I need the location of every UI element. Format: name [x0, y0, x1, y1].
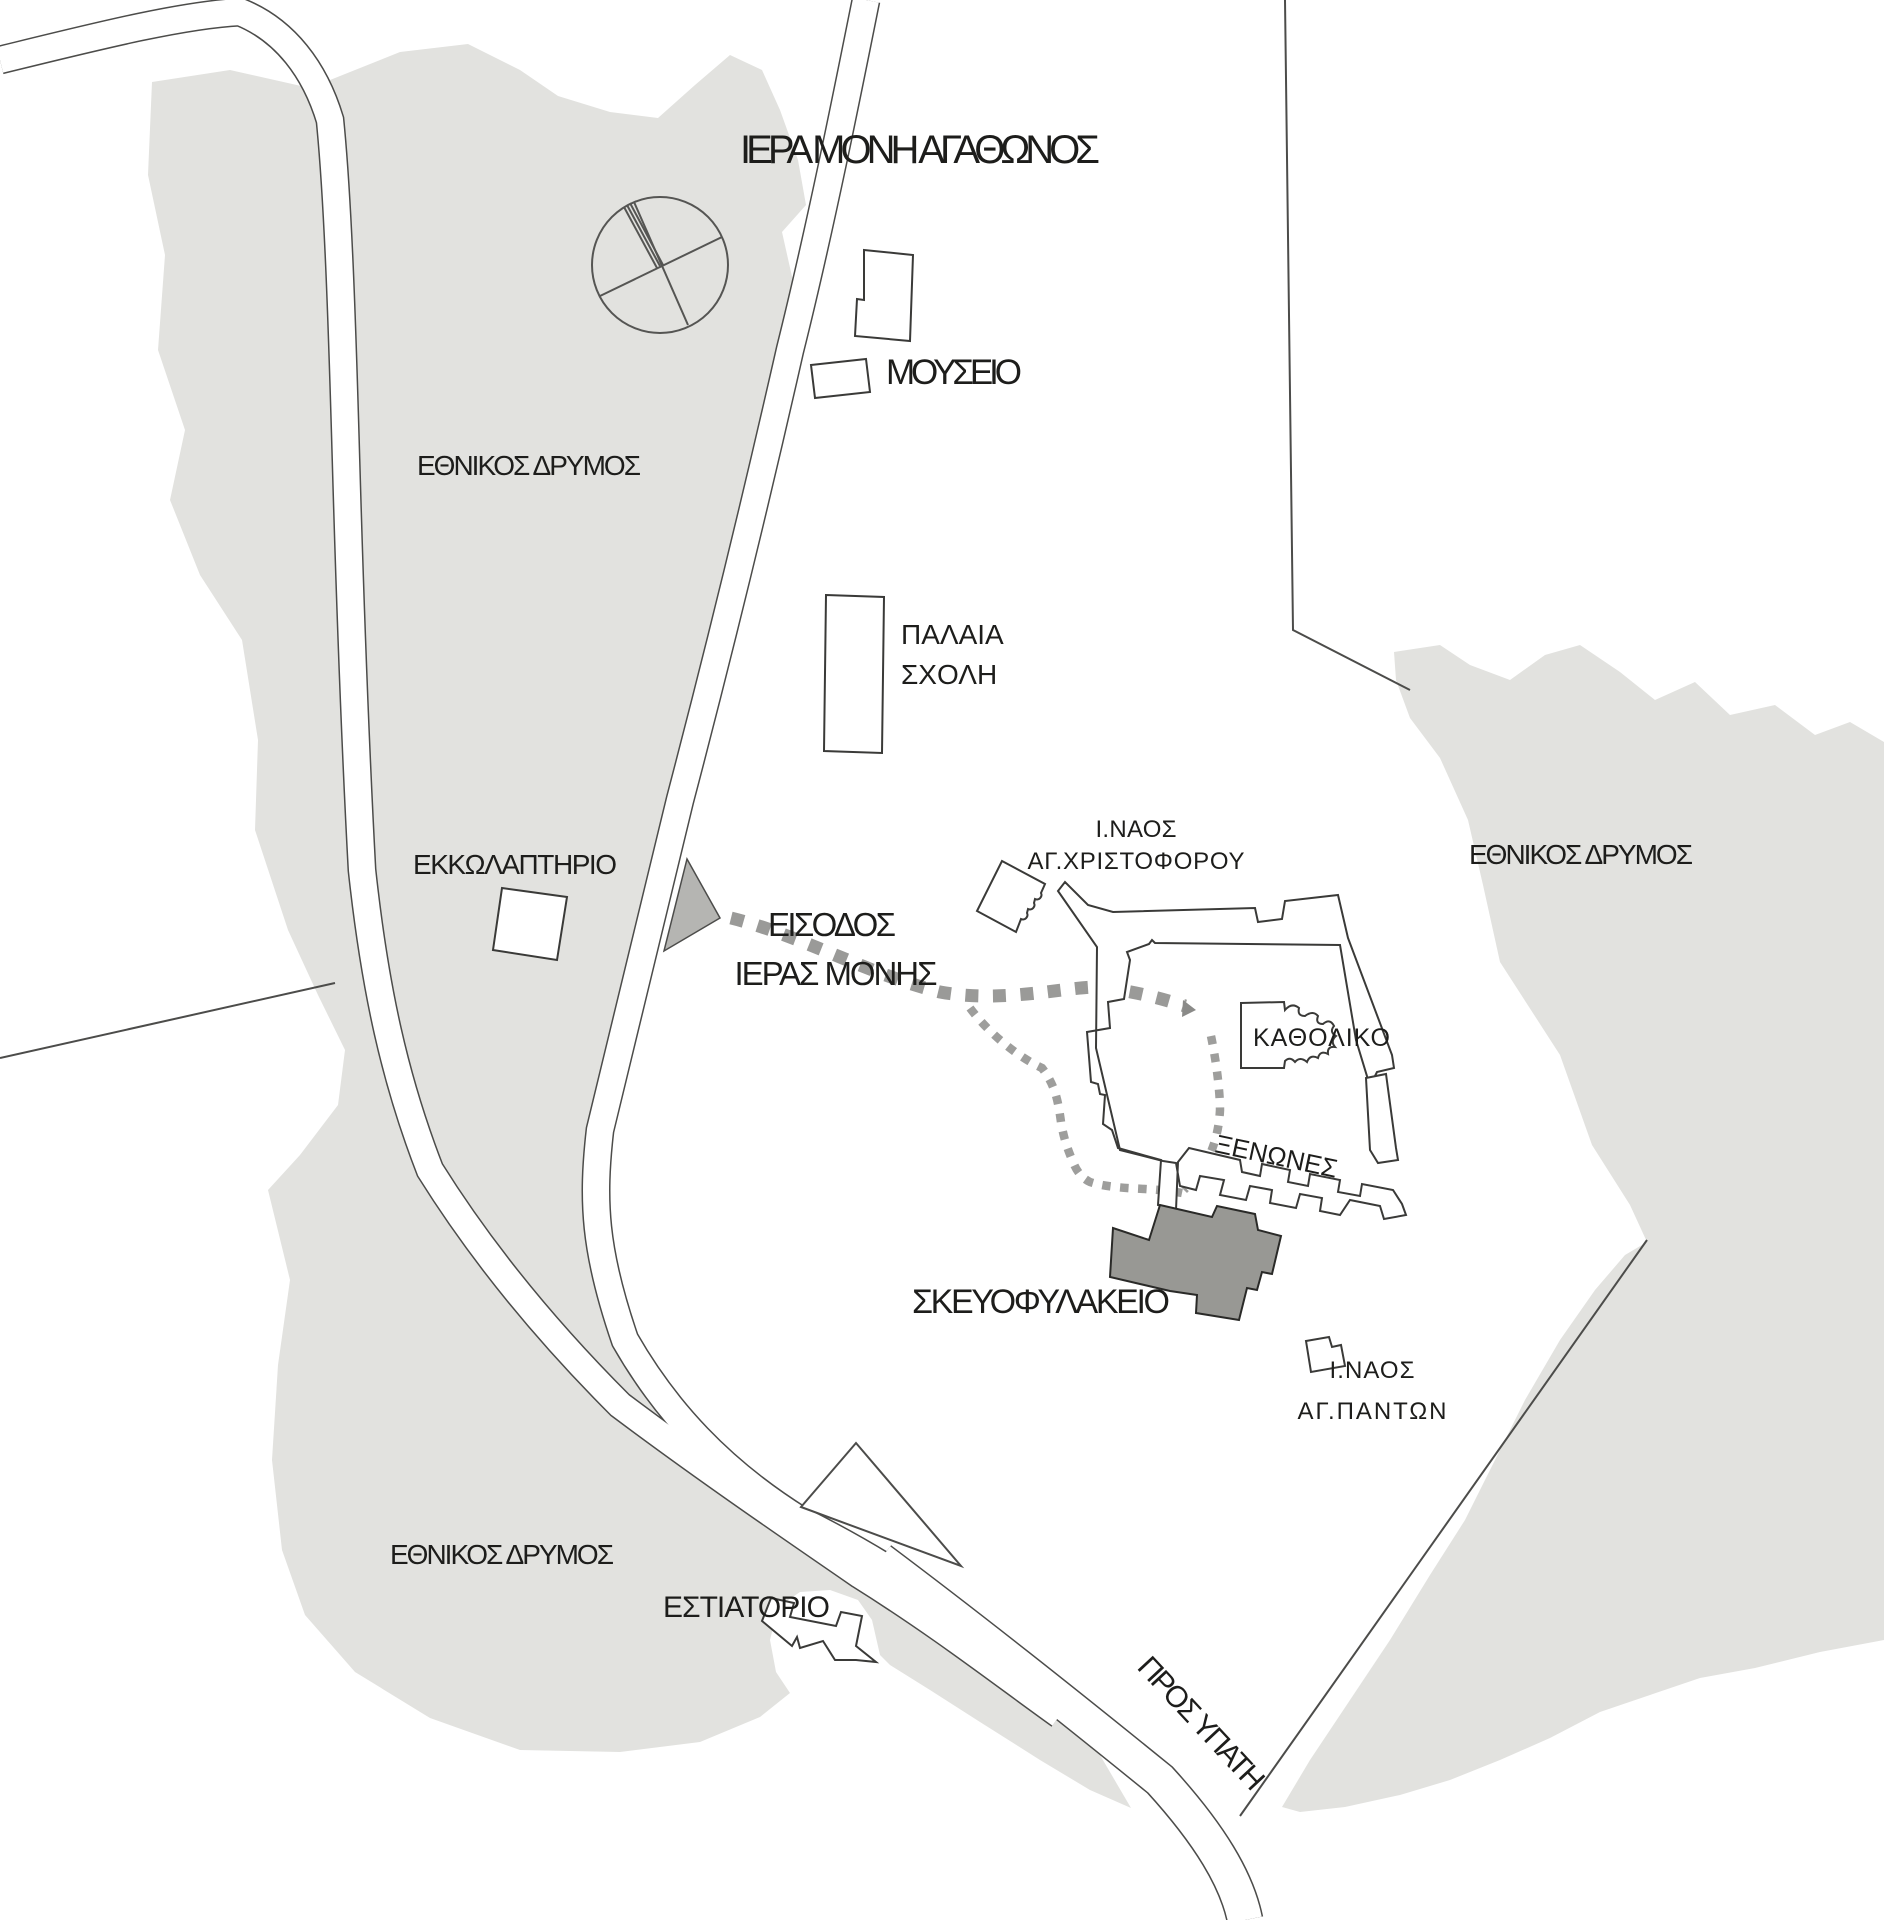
svg-text:ΕΘΝΙΚΟΣ ΔΡΥΜΟΣ: ΕΘΝΙΚΟΣ ΔΡΥΜΟΣ: [417, 450, 641, 481]
svg-text:ΕΙΣΟΔΟΣ: ΕΙΣΟΔΟΣ: [768, 906, 896, 943]
svg-text:ΠΑΛΑΙΑ: ΠΑΛΑΙΑ: [901, 619, 1004, 650]
svg-text:ΙΕΡΑΣ ΜΟΝΗΣ: ΙΕΡΑΣ ΜΟΝΗΣ: [735, 955, 938, 992]
svg-text:ΜΟΥΣΕΙΟ: ΜΟΥΣΕΙΟ: [886, 353, 1022, 392]
svg-text:ΕΚΚΩΛΑΠΤΗΡΙΟ: ΕΚΚΩΛΑΠΤΗΡΙΟ: [413, 849, 617, 880]
svg-text:ΕΘΝΙΚΟΣ ΔΡΥΜΟΣ: ΕΘΝΙΚΟΣ ΔΡΥΜΟΣ: [1469, 839, 1693, 870]
svg-text:ΕΘΝΙΚΟΣ ΔΡΥΜΟΣ: ΕΘΝΙΚΟΣ ΔΡΥΜΟΣ: [390, 1539, 614, 1570]
svg-text:ΕΣΤΙΑΤΟΡΙΟ: ΕΣΤΙΑΤΟΡΙΟ: [663, 1591, 830, 1624]
svg-text:ΑΓ.ΧΡΙΣΤΟΦΟΡΟΥ: ΑΓ.ΧΡΙΣΤΟΦΟΡΟΥ: [1028, 848, 1245, 875]
svg-text:Ι.ΝΑΟΣ: Ι.ΝΑΟΣ: [1330, 1357, 1415, 1384]
svg-text:ΣΧΟΛΗ: ΣΧΟΛΗ: [901, 659, 997, 690]
svg-text:ΚΑΘΟΛΙΚΟ: ΚΑΘΟΛΙΚΟ: [1253, 1024, 1390, 1052]
svg-text:Ι.ΝΑΟΣ: Ι.ΝΑΟΣ: [1096, 816, 1177, 843]
svg-text:ΙΕΡΑ ΜΟΝΗ ΑΓΑΘΩΝΟΣ: ΙΕΡΑ ΜΟΝΗ ΑΓΑΘΩΝΟΣ: [740, 128, 1100, 172]
svg-text:ΣΚΕΥΟΦΥΛΑΚΕΙΟ: ΣΚΕΥΟΦΥΛΑΚΕΙΟ: [912, 1283, 1170, 1321]
